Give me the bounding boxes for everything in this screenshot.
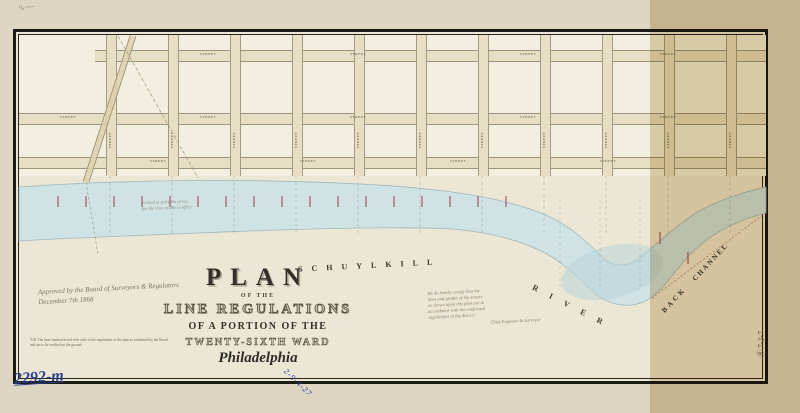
map-sheet: STREETSTREETSTREETSTREETSTREETSTREETSTRE… [0,0,800,413]
title-of-the: OF THE [178,293,338,299]
top-left-pencil-scribble: ∿⁓ [17,1,35,14]
title-city: Philadelphia [170,350,346,367]
title-line-regulations: LINE REGULATIONS [150,302,366,318]
certification-note: We do hereby certify that thelines and g… [427,285,541,329]
aged-paper-band [650,0,800,413]
title-ward: TWENTY-SIXTH WARD [160,337,356,348]
title-of-a-portion: OF A PORTION OF THE [160,321,356,332]
catalog-number-ink: 2292-m [13,367,64,388]
